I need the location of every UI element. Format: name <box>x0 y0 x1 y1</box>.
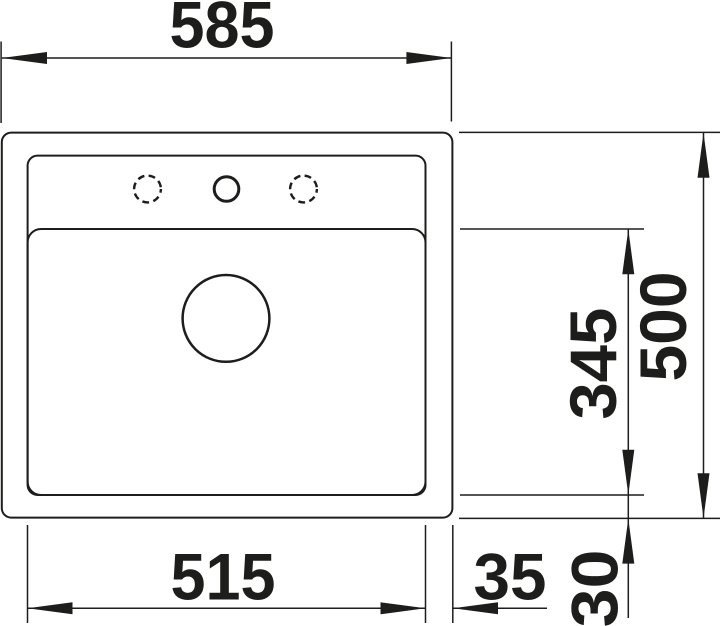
svg-text:515: 515 <box>171 540 276 614</box>
svg-text:585: 585 <box>170 0 275 62</box>
svg-text:500: 500 <box>626 272 700 382</box>
svg-text:35: 35 <box>474 540 547 614</box>
svg-text:345: 345 <box>556 308 630 420</box>
svg-text:30: 30 <box>558 550 632 626</box>
